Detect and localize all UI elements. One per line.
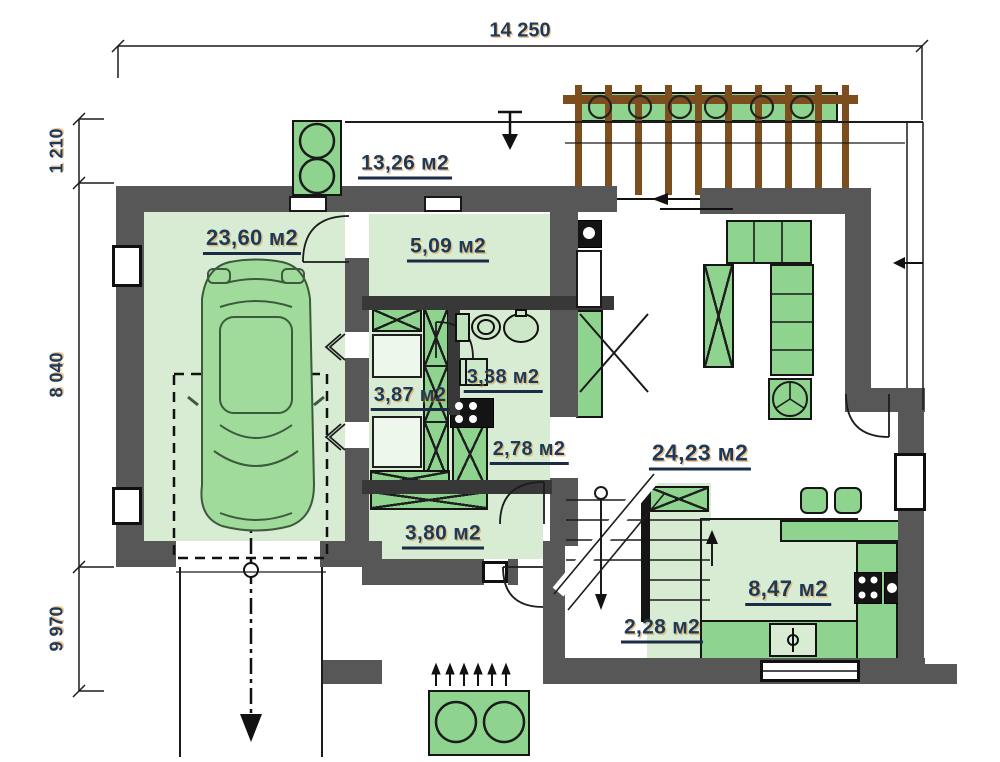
deck-arrow <box>893 257 923 269</box>
pergola-rafter <box>635 85 642 195</box>
stair-cabinet <box>649 486 709 512</box>
right-wall-window <box>894 453 926 511</box>
utility-shelf-1 <box>372 334 422 378</box>
wall-right-jog <box>845 388 925 412</box>
garage-floor <box>144 212 345 541</box>
label-living-room: 24,23 м2 <box>649 442 751 471</box>
wall-mid-seg-1 <box>345 258 369 332</box>
hall-window <box>482 561 508 583</box>
terrace-entry-arrow <box>498 112 522 150</box>
label-terrace: 13,26 м2 <box>358 153 452 180</box>
label-vestibule: 5,09 м2 <box>407 236 489 263</box>
wall-hall-bottom <box>362 559 484 585</box>
porch-step-arrows <box>432 664 510 686</box>
wall-utility-bath <box>448 310 460 415</box>
wall-garage-bottom-left <box>118 541 176 567</box>
pergola-rafter <box>785 85 792 195</box>
label-utility: 3,87 м2 <box>371 385 450 411</box>
bar-stool-2 <box>834 487 862 514</box>
wall-bottom-step <box>925 664 957 684</box>
bar-stool-1 <box>800 487 828 514</box>
wall-bottom <box>545 658 925 684</box>
wall-right-above-window <box>898 412 924 458</box>
label-pantry: 2,28 м2 <box>621 617 703 644</box>
wall-porch-stub-1 <box>322 660 382 684</box>
sofa-top-seat <box>726 220 812 264</box>
label-corridor: 2,78 м2 <box>490 439 569 465</box>
pergola-rafter <box>815 85 822 195</box>
closet-cell <box>425 310 447 367</box>
porch-planter <box>428 690 530 756</box>
kitchen-window <box>760 660 860 682</box>
terrace-planter <box>292 120 342 196</box>
pergola-rafter <box>695 85 702 195</box>
wall-mid-seg-2 <box>345 358 369 422</box>
wall-top-left <box>116 186 617 212</box>
dim-left-bottom: 9 970 <box>47 606 68 651</box>
side-table <box>768 378 812 420</box>
dim-total-width: 14 250 <box>489 20 550 43</box>
living-cabinet <box>576 310 603 418</box>
fireplace <box>576 220 602 248</box>
pergola-rafter <box>755 85 762 195</box>
coffee-table <box>703 264 734 368</box>
dim-left-top: 1 210 <box>47 128 68 173</box>
label-garage: 23,60 м2 <box>203 227 301 255</box>
counter-bottom <box>700 620 858 660</box>
utility-shelf-2 <box>372 416 422 468</box>
wall-top-right <box>700 188 848 214</box>
dim-left-middle: 8 040 <box>47 352 68 397</box>
wall-column-living-lower <box>550 478 578 546</box>
garage-window-2 <box>112 487 142 525</box>
pergola-rafter <box>605 85 612 195</box>
pergola-rafter <box>725 85 732 195</box>
label-kitchen: 8,47 м2 <box>745 578 831 606</box>
wall-mid-seg-3 <box>345 448 369 543</box>
floor-plan: 14 250 1 210 8 040 9 970 13,26 м2 23,60 … <box>0 0 1000 762</box>
label-bathroom: 3,38 м2 <box>464 367 543 393</box>
pergola-rafter <box>665 85 672 195</box>
sofa-right-seat <box>770 264 814 376</box>
vestibule-cabinet <box>372 308 422 332</box>
wall-stair-porch <box>543 541 565 684</box>
corridor-cabinet-cell <box>454 420 486 488</box>
garage-top-niche <box>289 196 327 212</box>
vestibule-top-niche <box>424 196 462 212</box>
wall-living-right-upper <box>845 188 871 398</box>
label-hall: 3,80 м2 <box>402 523 484 550</box>
pergola-rafter <box>842 85 849 195</box>
stove <box>854 572 882 604</box>
wall-hall-top <box>362 480 552 494</box>
garage-window-1 <box>112 245 142 287</box>
fireplace-niche <box>576 250 602 308</box>
counter-top <box>780 520 900 542</box>
pergola-rafter <box>575 85 582 195</box>
wall-hall-bottom-pier <box>508 559 518 585</box>
